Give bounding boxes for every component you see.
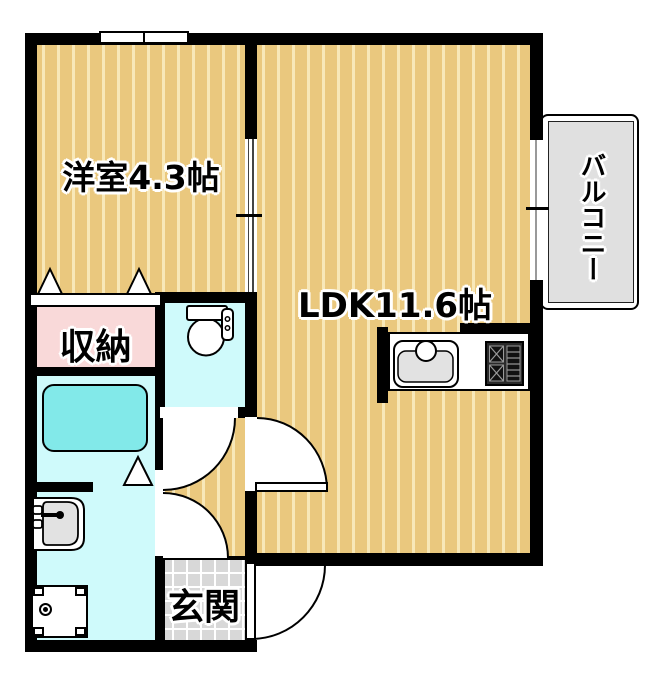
wall-room-divider-mid [245,292,257,418]
storage-label: 収納 [31,318,160,370]
wall-toilet-top [155,292,257,303]
kitchen-sink-icon [392,337,464,391]
entrance-door-leaf [245,562,256,640]
wall-room-divider-lower [245,490,257,566]
ldk-door-opening [245,417,257,491]
wall-bottom [25,640,257,652]
washing-machine-icon [31,585,88,638]
bath-folding-door-triangle-icon [121,454,155,488]
balcony-window-tick [526,207,549,210]
bathtub-icon [42,384,148,452]
window-top-icon [99,31,189,44]
toilet-icon [184,303,236,357]
floor-plan: 洋室4.3帖 LDK11.6帖 収納 玄関 バルコニー [0,0,667,675]
ldk-door-leaf [255,482,328,492]
ldk-label: LDK11.6帖 [270,278,520,327]
entrance-label: 玄関 [163,578,245,630]
western-room-label: 洋室4.3帖 [30,151,252,199]
kitchen-counter-end-cap [377,327,388,403]
sliding-door-tick [236,214,262,217]
wall-bath-bottom [31,482,93,492]
stove-icon [484,339,526,387]
wall-right [530,33,543,565]
balcony-window-icon [530,140,543,280]
entrance-door-swing-icon [251,565,326,640]
wall-room-divider-upper [245,33,257,140]
folding-door-triangle-icon [35,266,65,296]
balcony-label: バルコニー [574,142,608,292]
window-top-divider [143,33,145,42]
washbasin-icon [31,494,87,552]
folding-door-triangle-icon [124,266,154,296]
window-glass-line [535,140,537,280]
toilet-door-opening [160,407,238,418]
